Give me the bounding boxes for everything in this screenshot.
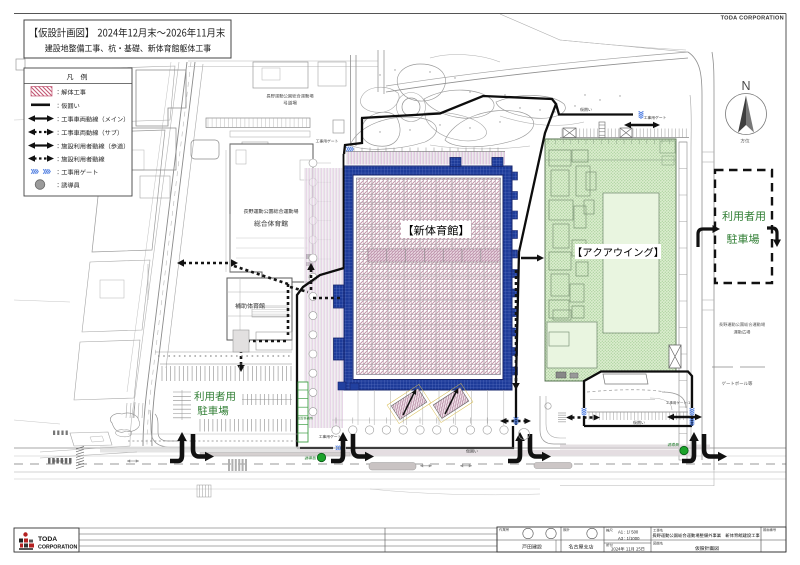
- svg-text:TODA CORPORATION: TODA CORPORATION: [721, 16, 784, 22]
- svg-text:TODA: TODA: [38, 536, 57, 543]
- svg-text:CORPORATION: CORPORATION: [38, 545, 78, 551]
- svg-text:N: N: [741, 79, 750, 93]
- svg-text:A3 : 1/1000: A3 : 1/1000: [618, 536, 640, 541]
- svg-text:A1 : 1/ 500: A1 : 1/ 500: [618, 530, 639, 535]
